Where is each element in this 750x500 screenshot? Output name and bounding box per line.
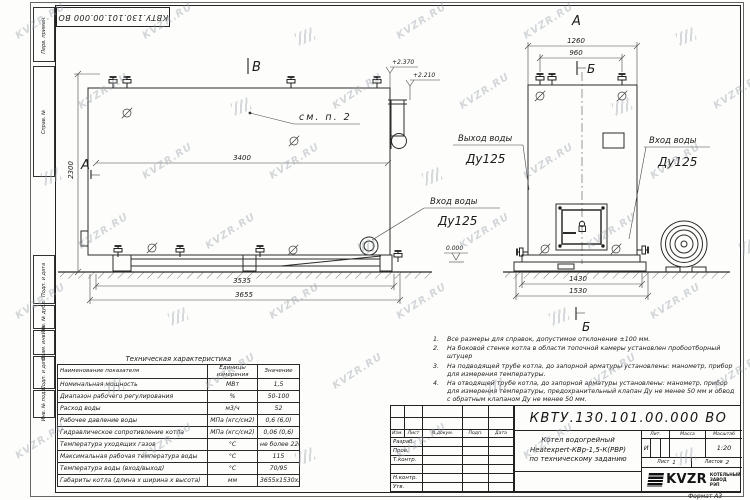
- section-a-label: А: [80, 158, 90, 173]
- tb-revision-cell: [423, 418, 463, 430]
- tb-sheet-row: Лист 1 Листов 2: [642, 458, 742, 468]
- dim-3655: 3655: [235, 291, 253, 299]
- dim-3400: 3400: [233, 154, 251, 162]
- note-item: 3.На подводящей трубе котла, до запорной…: [433, 363, 739, 379]
- tech-cell: 50-100: [258, 391, 300, 403]
- tb-product-name: Котел водогрейный Heatexpert-КВр-1,5-К(Р…: [514, 431, 641, 493]
- tb-revision-cell: [463, 418, 489, 430]
- tech-cell: 3655х1530х2370: [258, 475, 300, 487]
- lit-value: И: [642, 439, 651, 457]
- tech-table: Техническая характеристика Наименование …: [57, 355, 300, 487]
- tech-cell: 0,06 (0,6): [258, 427, 300, 439]
- tb-role-empty-cell: [463, 465, 489, 474]
- tech-cell: не более 220: [258, 439, 300, 451]
- tech-table-body: Номинальная мощностьМВт1,5Диапазон рабоч…: [58, 379, 300, 487]
- tech-row: Расход водым3/ч52: [58, 403, 300, 415]
- view-a-label: А: [571, 14, 581, 29]
- tb-role-empty-cell: [463, 447, 489, 456]
- tech-cell: Гидравлическое сопротивление котла: [58, 427, 208, 439]
- note-text: На подводящей трубе котла, до запорной а…: [447, 363, 739, 379]
- tb-right-values: И 1:20: [642, 439, 742, 458]
- tb-revision-cell: [405, 406, 423, 418]
- tech-table-grid: Наименование показателя Единицы измерени…: [57, 364, 300, 487]
- tb-role-empty-cell: [463, 474, 489, 483]
- tech-row: Температура воды (вход/выход)°С70/95: [58, 463, 300, 475]
- tech-col-name: Наименование показателя: [58, 365, 208, 379]
- doc-number: КВТУ.130.101.00.000 ВО: [514, 406, 742, 431]
- tb-head-cell: N докум.: [423, 430, 463, 438]
- tb-left-grid: Изм.ЛистN докум.Подп.ДатаРазраб.Пров.Т.к…: [391, 406, 514, 493]
- section-b-top-label: Б: [587, 62, 595, 76]
- tb-revision-cell: [405, 418, 423, 430]
- tech-row: Диапазон рабочего регулирования%50-100: [58, 391, 300, 403]
- tb-role-label: Утв.: [391, 483, 423, 492]
- dim-1530: 1530: [569, 287, 587, 295]
- tb-head-cell: Изм.: [391, 430, 405, 438]
- lit-cells: И: [642, 439, 670, 457]
- tech-row: Максимальная рабочая температура воды°С1…: [58, 451, 300, 463]
- tech-cell: 0,6 (6,0): [258, 415, 300, 427]
- tech-cell: 52: [258, 403, 300, 415]
- note-number: 2.: [433, 345, 447, 361]
- tech-row: Гидравлическое сопротивление котлаМПа (к…: [58, 427, 300, 439]
- tb-revision-cell: [489, 406, 514, 418]
- tech-row: Номинальная мощностьМВт1,5: [58, 379, 300, 391]
- tech-cell: МПа (кгс/см2): [208, 427, 258, 439]
- tech-cell: 1,5: [258, 379, 300, 391]
- tb-role-empty-cell: [489, 474, 514, 483]
- elevation-2370: +2.370: [392, 59, 414, 66]
- front-inlet-dn: Ду125: [657, 155, 697, 169]
- tb-revision-cell: [423, 406, 463, 418]
- tb-revision-cell: [391, 406, 405, 418]
- dim-2300: 2300: [67, 161, 75, 179]
- note-item: 4.На отводящей трубе котла, до запорной …: [433, 380, 739, 405]
- tb-center-divider: [515, 471, 641, 472]
- tb-head-cell: Дата: [489, 430, 514, 438]
- notes-list: 1.Все размеры для справок, допустимое от…: [433, 336, 739, 405]
- tb-role-empty-cell: [489, 438, 514, 447]
- front-outlet-label: Выход воды: [458, 134, 512, 144]
- tech-cell: °С: [208, 463, 258, 475]
- tb-right-grid: Лит. Масса Масштаб И 1:20 Лист 1: [641, 431, 742, 493]
- format-label: Формат А3: [688, 493, 722, 500]
- tb-revision-cell: [463, 406, 489, 418]
- front-view: [503, 72, 730, 279]
- note-number: 3.: [433, 363, 447, 379]
- tb-head-cell: Лист: [405, 430, 423, 438]
- tb-role-empty-cell: [423, 483, 463, 492]
- company-logo-block: KVZR КОТЕЛЬНЫЙ ЗАВОД РЭП: [642, 468, 742, 491]
- tb-revision-cell: [489, 418, 514, 430]
- tb-role-empty-cell: [423, 447, 463, 456]
- elevation-2210: +2.210: [413, 72, 435, 79]
- front-outlet-dn: Ду125: [465, 152, 505, 166]
- company-name: КОТЕЛЬНЫЙ ЗАВОД РЭП: [710, 472, 736, 487]
- tb-role-empty-cell: [423, 438, 463, 447]
- front-inlet-label: Вход воды: [649, 136, 697, 146]
- section-b-label: В: [252, 60, 261, 75]
- side-view-dimensions: [74, 58, 500, 304]
- tech-header-row: Наименование показателя Единицы измерени…: [58, 365, 300, 379]
- note-item: 1.Все размеры для справок, допустимое от…: [433, 336, 739, 344]
- tech-col-units: Единицы измерения: [208, 365, 258, 379]
- dim-1430: 1430: [569, 275, 587, 283]
- note-text: На отводящей трубе котла, до запорной ар…: [447, 380, 739, 405]
- tb-role-empty-cell: [463, 483, 489, 492]
- note-item: 2.На боковой стенке котла в области топо…: [433, 345, 739, 361]
- dim-960: 960: [569, 49, 583, 57]
- tech-cell: Рабочее давление воды: [58, 415, 208, 427]
- tb-head-cell: Подп.: [463, 430, 489, 438]
- tb-right-headers: Лит. Масса Масштаб: [642, 431, 742, 439]
- company-logo-icon: [647, 473, 664, 487]
- tb-role-label: Пров.: [391, 447, 423, 456]
- mass-label: Масса: [670, 431, 706, 438]
- tb-role-empty-cell: [489, 447, 514, 456]
- tb-role-empty-cell: [423, 474, 463, 483]
- sheet-value: 1: [672, 460, 676, 466]
- tech-cell: Температура уходящих газов: [58, 439, 208, 451]
- tech-cell: %: [208, 391, 258, 403]
- tech-table-title: Техническая характеристика: [57, 355, 300, 364]
- sheets-cell: Листов 2: [692, 458, 742, 467]
- tech-cell: Номинальная мощность: [58, 379, 208, 391]
- tb-role-empty-cell: [423, 456, 463, 465]
- tech-cell: °С: [208, 451, 258, 463]
- tech-cell: мм: [208, 475, 258, 487]
- tech-cell: м3/ч: [208, 403, 258, 415]
- tb-role-label: Н.контр.: [391, 474, 423, 483]
- tech-row: Температура уходящих газов°Сне более 220: [58, 439, 300, 451]
- tb-role-label: [391, 465, 423, 474]
- tech-cell: МПа (кгс/см2): [208, 415, 258, 427]
- dim-3535: 3535: [233, 277, 251, 285]
- lit-cell-empty: [661, 439, 670, 457]
- tb-role-empty-cell: [463, 456, 489, 465]
- tech-cell: °С: [208, 439, 258, 451]
- tb-role-label: Разраб.: [391, 438, 423, 447]
- product-name-line: по техническому заданию: [515, 455, 641, 465]
- sheets-label: Листов: [705, 460, 723, 465]
- scale-label: Масштаб: [706, 431, 742, 438]
- tech-cell: Температура воды (вход/выход): [58, 463, 208, 475]
- title-block: КВТУ.130.101.00.000 ВО Изм.ЛистN докум.П…: [390, 405, 741, 492]
- side-inlet-dn: Ду125: [437, 214, 477, 228]
- note-number: 1.: [433, 336, 447, 344]
- product-name-line: Котел водогрейный: [515, 436, 641, 446]
- tb-role-empty-cell: [489, 465, 514, 474]
- tb-role-empty-cell: [423, 465, 463, 474]
- tech-col-value: Значение: [258, 365, 300, 379]
- tech-cell: Диапазон рабочего регулирования: [58, 391, 208, 403]
- note-number: 4.: [433, 380, 447, 405]
- lit-cell-empty: [651, 439, 660, 457]
- company-logo-text: KVZR: [666, 472, 707, 487]
- sheets-value: 2: [726, 460, 730, 466]
- tb-role-empty-cell: [489, 456, 514, 465]
- sheet-cell: Лист 1: [642, 458, 692, 467]
- tech-cell: Расход воды: [58, 403, 208, 415]
- tech-cell: Габариты котла (длина х ширина х высота): [58, 475, 208, 487]
- dim-1260: 1260: [567, 37, 585, 45]
- drawing-sheet: КВТУ.130.101.00.000 ВО Перв. примен.Спра…: [0, 0, 750, 500]
- lit-label: Лит.: [642, 431, 670, 438]
- note-text: На боковой стенке котла в области топочн…: [447, 345, 739, 361]
- tech-row: Габариты котла (длина х ширина х высота)…: [58, 475, 300, 487]
- note-text: Все размеры для справок, допустимое откл…: [447, 336, 650, 344]
- tb-revision-cell: [391, 418, 405, 430]
- mass-value: [670, 439, 706, 457]
- tech-cell: Максимальная рабочая температура воды: [58, 451, 208, 463]
- side-view: [58, 77, 432, 279]
- elevation-0000: 0.000: [446, 245, 463, 252]
- side-inlet-label: Вход воды: [430, 197, 478, 207]
- sheet-label: Лист: [657, 460, 669, 465]
- tech-cell: 115: [258, 451, 300, 463]
- tech-row: Рабочее давление водыМПа (кгс/см2)0,6 (6…: [58, 415, 300, 427]
- tech-cell: МВт: [208, 379, 258, 391]
- scale-value: 1:20: [706, 439, 742, 457]
- see-note-label: см. п. 2: [299, 112, 352, 123]
- tb-role-empty-cell: [489, 483, 514, 492]
- tb-role-label: Т.контр.: [391, 456, 423, 465]
- product-name-line: Heatexpert-КВр-1,5-К(РВР): [515, 446, 641, 456]
- section-b-bottom-label: Б: [582, 320, 590, 334]
- tech-cell: 70/95: [258, 463, 300, 475]
- tb-role-empty-cell: [463, 438, 489, 447]
